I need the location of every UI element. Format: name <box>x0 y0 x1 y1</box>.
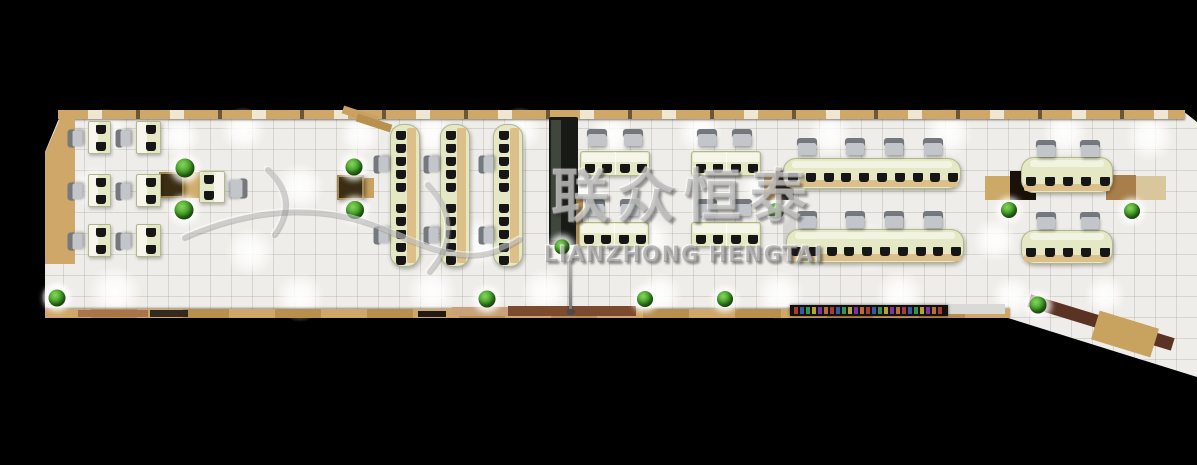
watermark-logo-curves <box>0 0 1197 465</box>
office-floorplan-render: 联众恒泰 LIANZHONG HENGTAI <box>0 0 1197 465</box>
watermark-chinese: 联众恒泰 <box>552 168 816 226</box>
watermark-latin: LIANZHONG HENGTAI <box>544 243 824 268</box>
